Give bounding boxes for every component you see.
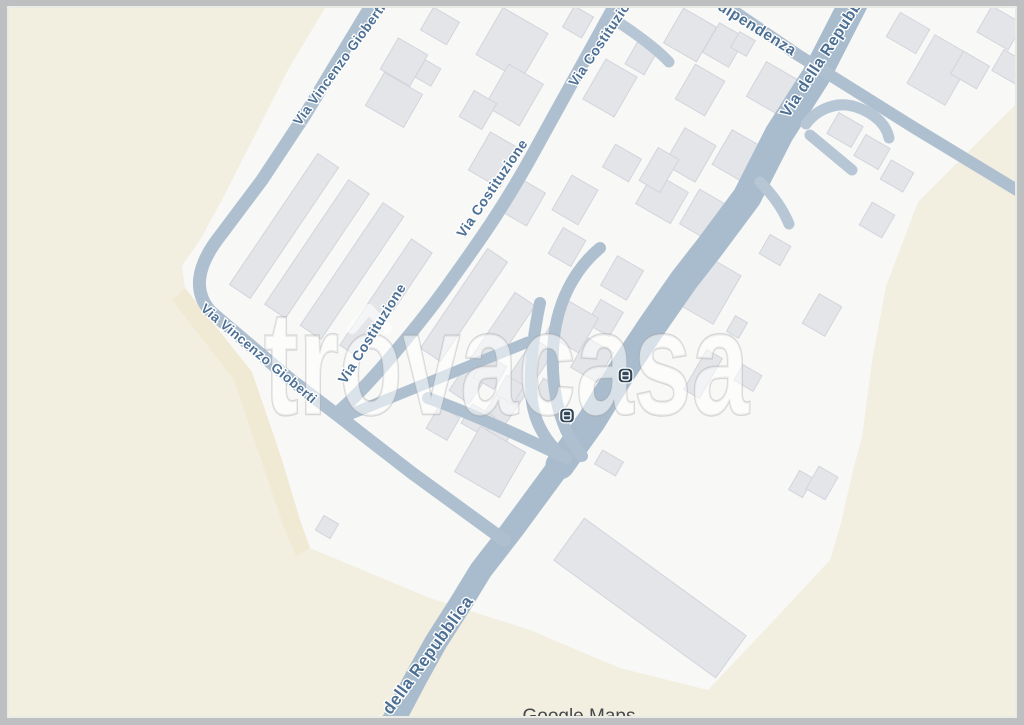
svg-text:trovacasa: trovacasa (264, 280, 750, 446)
